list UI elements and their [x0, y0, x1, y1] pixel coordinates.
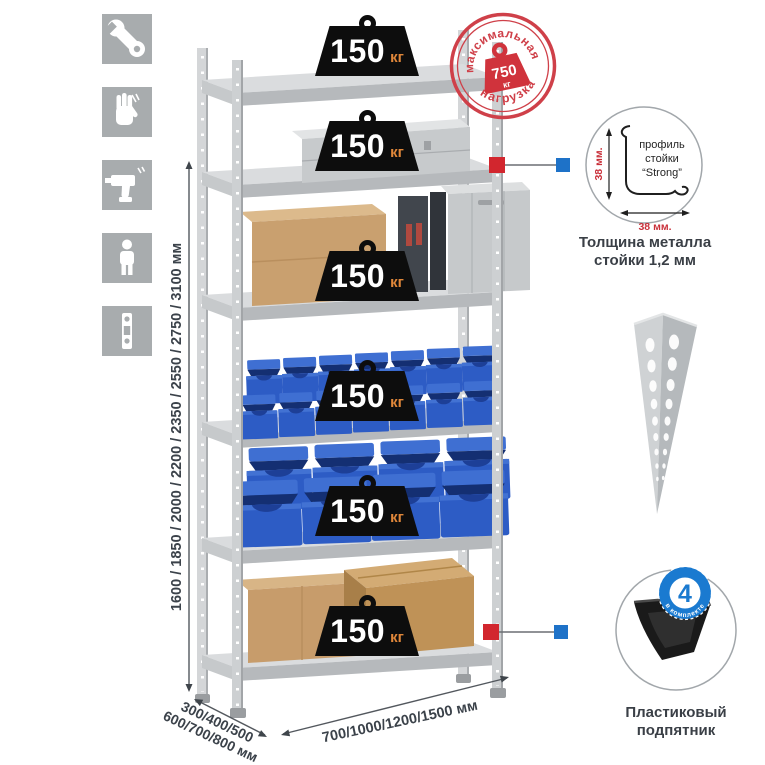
- quantity-badge: 4 в комплекте: [657, 565, 713, 621]
- connector-red-square: [483, 624, 499, 640]
- height-dimension-label: 1600 / 1850 / 2000 / 2200 / 2350 / 2550 …: [169, 147, 185, 707]
- badge-value: 150: [330, 378, 385, 415]
- tool-icon-gloves: [102, 87, 152, 137]
- profile-dim-horizontal: 38 мм.: [638, 221, 671, 233]
- max-load-stamp: максимальная нагрузка 750 кг: [437, 0, 570, 132]
- drill-icon: [102, 160, 152, 210]
- profile-label: профиль стойки “Strong”: [630, 138, 694, 180]
- foot-caption-line1: Пластиковый: [591, 704, 761, 722]
- badge-unit: кг: [390, 49, 404, 66]
- badge-value: 150: [330, 33, 385, 70]
- shelf-load-badge: 150кг: [315, 475, 419, 536]
- level-icon: [102, 306, 152, 356]
- shelf-load-badge: 150кг: [315, 15, 419, 76]
- tool-icon-person: [102, 233, 152, 283]
- quantity-badge-value: 4: [678, 580, 692, 608]
- badge-value: 150: [330, 613, 385, 650]
- badge-unit: кг: [390, 274, 404, 291]
- profile-caption: Толщина металла стойки 1,2 мм: [560, 234, 730, 270]
- connector-blue-square: [556, 158, 570, 172]
- shelf-load-badge: 150кг: [315, 360, 419, 421]
- tool-icon-drill: [102, 160, 152, 210]
- badge-unit: кг: [390, 144, 404, 161]
- shelf-load-badge: 150кг: [315, 110, 419, 171]
- profile-label-line1: профиль: [630, 138, 694, 152]
- badge-value: 150: [330, 258, 385, 295]
- badge-unit: кг: [390, 629, 404, 646]
- product-infographic: 38 мм. 38 мм.: [0, 0, 765, 765]
- gloves-icon: [102, 87, 152, 137]
- connector-red-square: [489, 157, 505, 173]
- profile-caption-line1: Толщина металла: [560, 234, 730, 252]
- badge-value: 150: [330, 493, 385, 530]
- profile-caption-line2: стойки 1,2 мм: [560, 252, 730, 270]
- badge-unit: кг: [390, 509, 404, 526]
- foot-caption-line2: подпятник: [591, 722, 761, 740]
- profile-dim-vertical: 38 мм.: [593, 147, 605, 180]
- badge-value: 150: [330, 128, 385, 165]
- person-icon: [102, 233, 152, 283]
- shelf-load-badge: 150кг: [315, 240, 419, 301]
- shelf-load-badge: 150кг: [315, 595, 419, 656]
- wrench-icon: [102, 14, 152, 64]
- tool-icon-level: [102, 306, 152, 356]
- profile-label-line2: стойки: [630, 152, 694, 166]
- badge-unit: кг: [390, 394, 404, 411]
- foot-caption: Пластиковый подпятник: [591, 704, 761, 740]
- tool-icon-wrench: [102, 14, 152, 64]
- connector-blue-square: [554, 625, 568, 639]
- profile-label-line3: “Strong”: [630, 166, 694, 180]
- corner-post-image: [634, 314, 697, 514]
